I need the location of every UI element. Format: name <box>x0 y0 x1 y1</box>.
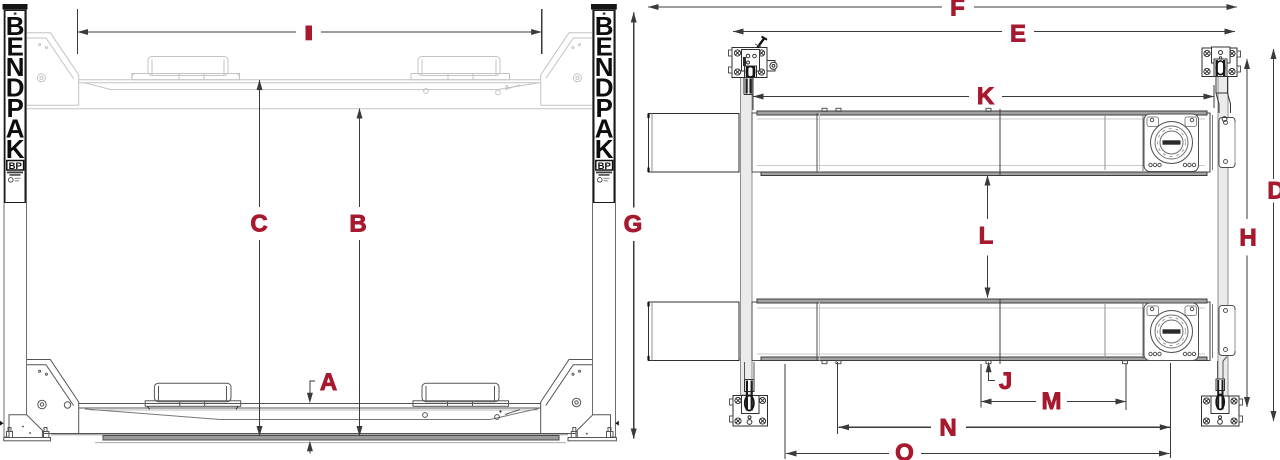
svg-text:H: H <box>1239 225 1256 252</box>
svg-text:G: G <box>624 211 643 238</box>
svg-text:L: L <box>979 223 994 250</box>
svg-text:M: M <box>1042 388 1062 415</box>
svg-text:N: N <box>939 415 956 442</box>
svg-text:K: K <box>595 134 614 164</box>
svg-text:J: J <box>999 368 1012 395</box>
svg-text:E: E <box>1010 21 1026 48</box>
svg-text:B: B <box>349 211 366 238</box>
svg-text:C: C <box>250 211 267 238</box>
svg-text:K: K <box>6 134 25 164</box>
svg-text:D: D <box>1267 178 1280 205</box>
svg-text:O: O <box>895 440 914 460</box>
svg-text:BP: BP <box>598 161 612 172</box>
svg-text:F: F <box>950 0 965 22</box>
svg-text:A: A <box>320 369 337 396</box>
svg-text:K: K <box>977 83 995 110</box>
svg-text:BP: BP <box>9 161 23 172</box>
